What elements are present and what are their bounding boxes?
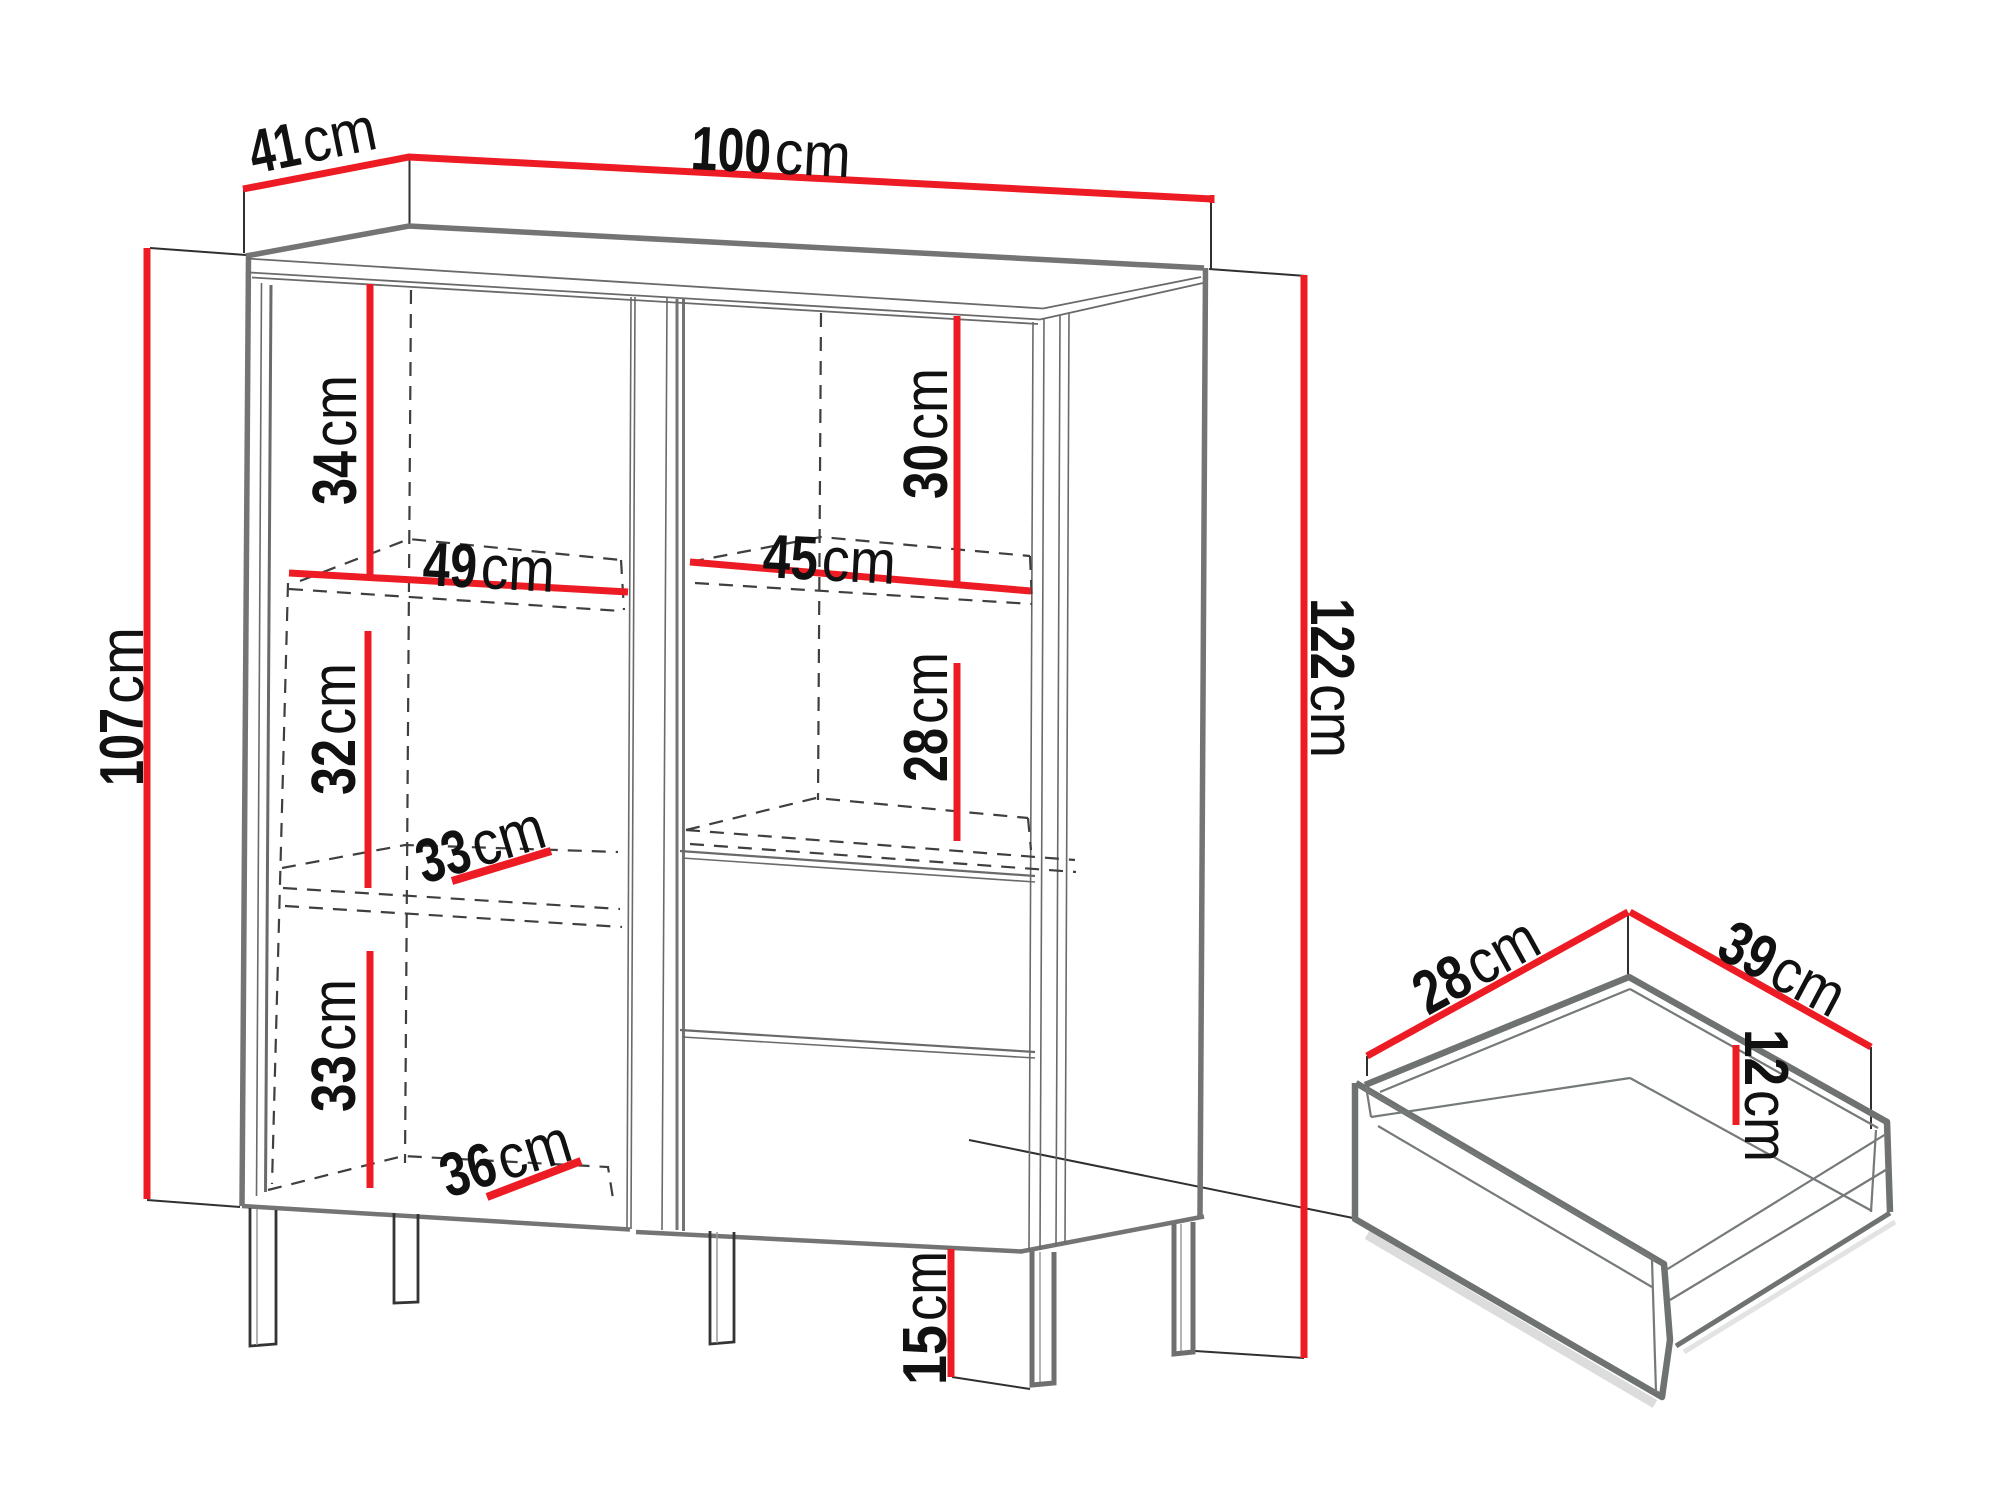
svg-text:cm: cm [891,1251,960,1321]
svg-text:49: 49 [421,530,479,602]
svg-text:cm: cm [300,979,369,1051]
svg-text:cm: cm [300,663,369,735]
svg-text:cm: cm [301,375,370,447]
svg-text:122: 122 [1297,598,1366,680]
svg-text:cm: cm [820,525,898,598]
svg-text:100: 100 [689,114,773,187]
svg-text:cm: cm [88,627,157,704]
svg-text:28: 28 [892,728,961,782]
svg-text:33: 33 [300,1055,369,1112]
svg-text:34: 34 [301,451,370,505]
svg-text:12: 12 [1731,1029,1800,1086]
svg-text:cm: cm [296,94,382,176]
svg-text:15: 15 [891,1325,960,1385]
svg-text:cm: cm [892,368,961,440]
svg-text:cm: cm [1297,684,1366,758]
svg-text:cm: cm [773,118,853,191]
svg-text:45: 45 [761,522,820,594]
svg-text:cm: cm [1731,1090,1800,1162]
svg-text:107: 107 [88,708,157,786]
svg-text:cm: cm [892,652,961,724]
svg-text:30: 30 [892,444,961,499]
svg-text:cm: cm [479,533,557,606]
svg-text:32: 32 [300,739,369,795]
